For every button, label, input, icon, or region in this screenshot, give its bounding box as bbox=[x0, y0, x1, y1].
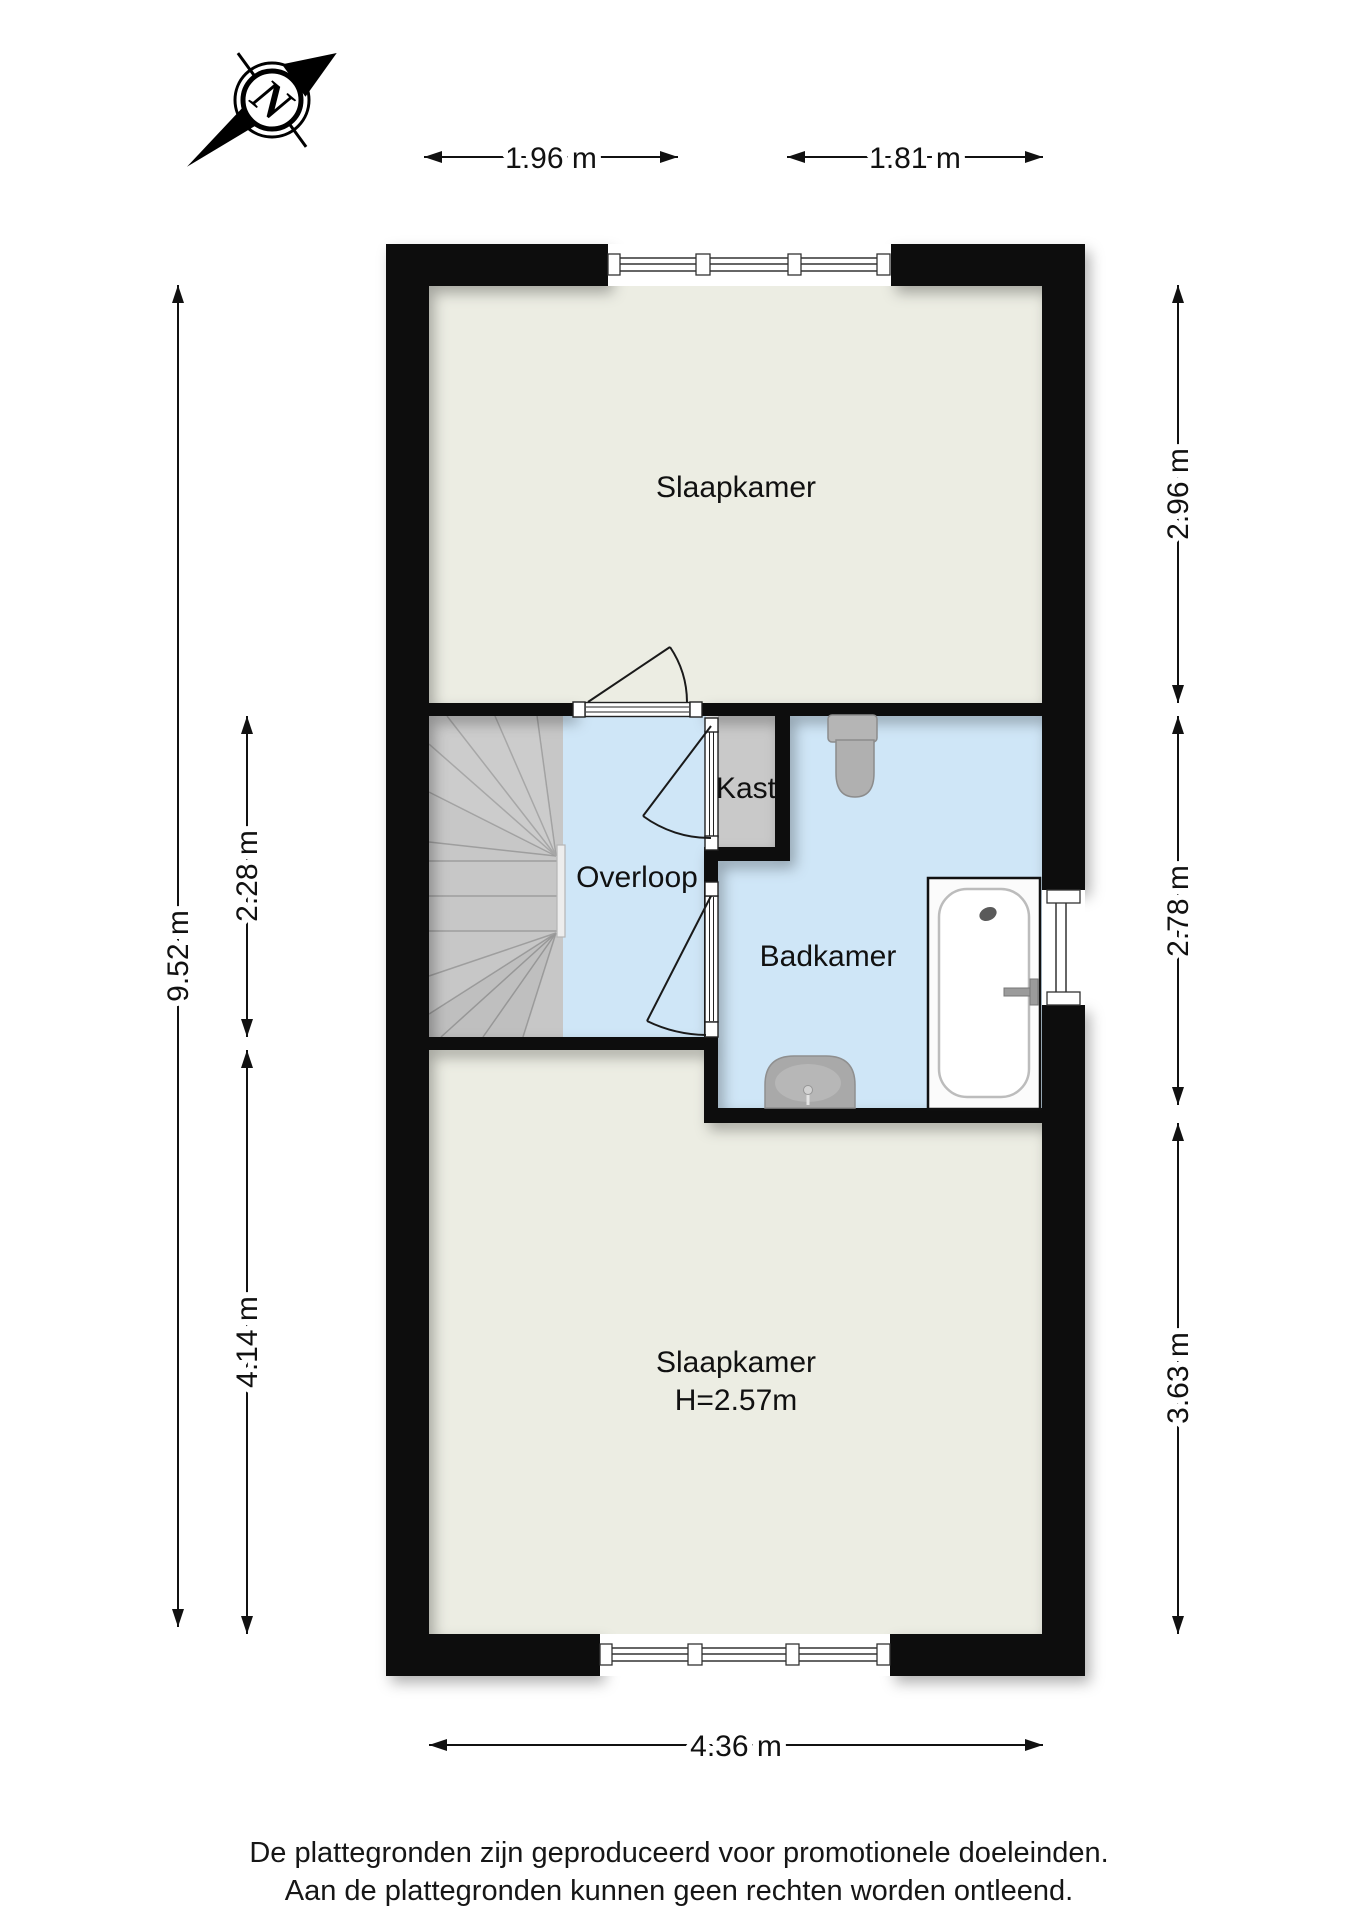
svg-text:2.96 m: 2.96 m bbox=[1162, 448, 1195, 540]
dimension-right-top: 2.96 m bbox=[1162, 285, 1195, 703]
compass-rose: N bbox=[151, 6, 371, 210]
dimension-top-left: 1.96 m bbox=[424, 142, 678, 175]
dimension-right-bottom: 3.63 m bbox=[1162, 1123, 1195, 1634]
staircase bbox=[429, 716, 565, 1037]
slaapkamer-bottom-floor-left bbox=[429, 1050, 704, 1634]
svg-text:1.96 m: 1.96 m bbox=[505, 142, 597, 175]
svg-text:2.28 m: 2.28 m bbox=[231, 830, 264, 922]
kast-label: Kast bbox=[716, 772, 777, 805]
dimension-left-outer: 9.52 m bbox=[162, 285, 195, 1627]
bathtub bbox=[928, 878, 1040, 1109]
slaapkamer-top-label: Slaapkamer bbox=[656, 471, 816, 504]
svg-text:4.36 m: 4.36 m bbox=[690, 1730, 782, 1763]
overloop-label: Overloop bbox=[576, 861, 698, 894]
svg-text:9.52 m: 9.52 m bbox=[162, 910, 195, 1002]
footer-disclaimer-line2: Aan de plattegronden kunnen geen rechten… bbox=[285, 1875, 1073, 1907]
washbasin bbox=[765, 1056, 855, 1108]
slaapkamer-bottom-height-label: H=2.57m bbox=[675, 1384, 798, 1417]
floorplan-page: N bbox=[0, 0, 1358, 1920]
svg-text:4.14 m: 4.14 m bbox=[231, 1296, 264, 1388]
dimension-left-middle: 2.28 m bbox=[231, 716, 264, 1037]
stairs-handrail bbox=[557, 845, 565, 937]
dimension-right-middle: 2.78 m bbox=[1162, 716, 1195, 1105]
footer-disclaimer-line1: De plattegronden zijn geproduceerd voor … bbox=[249, 1837, 1108, 1869]
badkamer-label: Badkamer bbox=[760, 940, 897, 973]
dimension-left-bottom: 4.14 m bbox=[231, 1050, 264, 1634]
svg-text:2.78 m: 2.78 m bbox=[1162, 865, 1195, 957]
dimension-top-right: 1.81 m bbox=[787, 142, 1043, 175]
floorplan-drawing: N bbox=[0, 0, 1358, 1920]
svg-text:1.81 m: 1.81 m bbox=[869, 142, 961, 175]
window-bottom bbox=[600, 1634, 890, 1676]
window-right-bathroom bbox=[1042, 890, 1085, 1005]
dimension-bottom: 4.36 m bbox=[429, 1730, 1043, 1763]
slaapkamer-bottom-label: Slaapkamer bbox=[656, 1346, 816, 1379]
svg-text:3.63 m: 3.63 m bbox=[1162, 1332, 1195, 1424]
window-top bbox=[608, 244, 891, 286]
